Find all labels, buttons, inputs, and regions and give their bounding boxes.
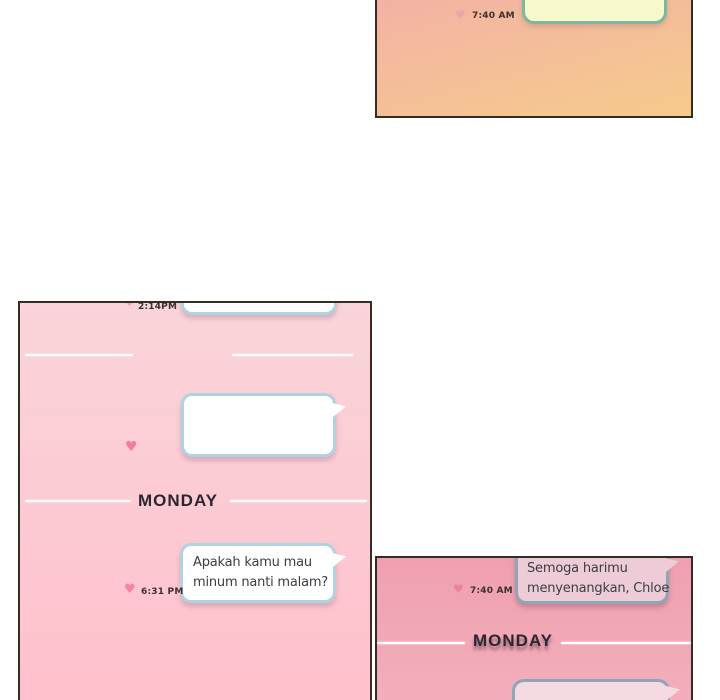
panel-evening-chat: Semoga harimu menyenangkan, Chloe ♥ 7:40… xyxy=(375,556,693,700)
heart-icon: ♥ xyxy=(125,440,138,454)
timestamp: 2:14PM xyxy=(138,302,177,312)
bubble-tail xyxy=(328,552,346,572)
timestamp: 6:31 PM xyxy=(141,587,183,597)
message-line: menyenangkan, Chloe xyxy=(527,579,657,599)
divider-line xyxy=(25,500,131,502)
divider-line xyxy=(377,642,465,644)
bubble-tail xyxy=(328,402,346,422)
heart-icon: ♥ xyxy=(125,301,134,309)
divider-line xyxy=(561,642,691,644)
heart-icon: ♥ xyxy=(455,9,466,21)
chat-bubble-yellow xyxy=(522,0,667,24)
divider-line xyxy=(25,354,133,356)
day-divider-label: MONDAY xyxy=(473,631,553,651)
chat-bubble-partial xyxy=(512,679,670,700)
divider-line xyxy=(230,500,367,502)
chat-bubble-partial xyxy=(181,301,337,315)
day-divider-label: MONDAY xyxy=(138,491,218,511)
message-line: Semoga harimu xyxy=(527,559,657,579)
chat-bubble-message: Apakah kamu mau minum nanti malam? xyxy=(180,543,336,603)
panel-morning-chat: ♥ 7:40 AM xyxy=(375,0,693,118)
webtoon-page: ♥ 7:40 AM ♥ 2:14PM ♥ MONDAY Apakah kamu … xyxy=(0,0,720,700)
divider-line xyxy=(232,354,353,356)
message-line: minum nanti malam? xyxy=(193,573,323,593)
panel-afternoon-chat: ♥ 2:14PM ♥ MONDAY Apakah kamu mau minum … xyxy=(18,301,372,700)
chat-bubble-empty xyxy=(181,393,336,457)
heart-icon: ♥ xyxy=(124,583,136,596)
heart-icon: ♥ xyxy=(453,583,464,595)
message-line: Apakah kamu mau xyxy=(193,553,323,573)
timestamp: 7:40 AM xyxy=(470,586,513,596)
timestamp: 7:40 AM xyxy=(472,11,515,21)
bubble-tail xyxy=(662,685,680,700)
chat-bubble-message: Semoga harimu menyenangkan, Chloe xyxy=(515,556,669,604)
